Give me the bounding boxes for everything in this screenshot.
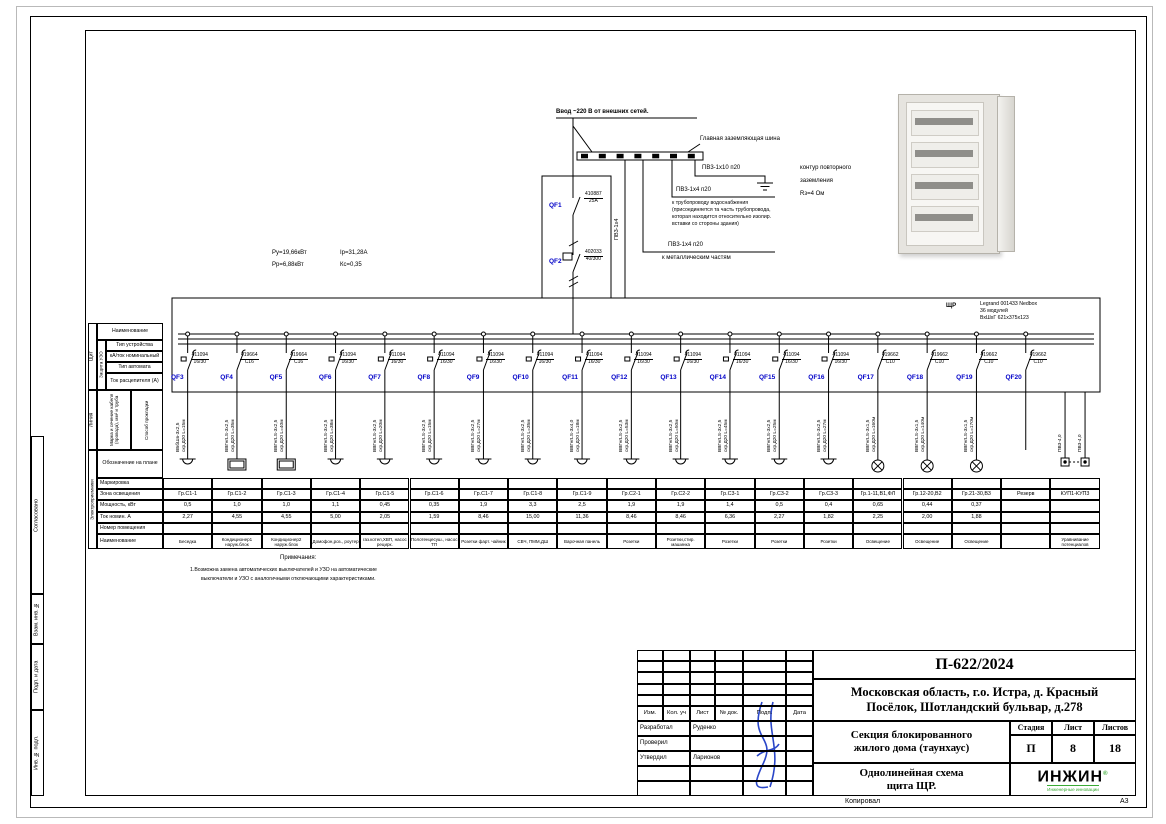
cell-empty-15 xyxy=(903,478,952,489)
cell-empty-12 xyxy=(755,523,804,534)
socket-symbol xyxy=(328,459,344,464)
revision-grid-cell xyxy=(786,672,813,683)
cable-label: ВВГнгLS-3х1,5скр.Д20 L=140м xyxy=(915,417,926,452)
signature-row-cell xyxy=(637,766,690,781)
revision-grid-cell xyxy=(637,672,663,683)
cell-group-4: Гр.С1-5 xyxy=(360,489,409,500)
cell-current-6: 8,46 xyxy=(459,512,508,523)
gzsh-label: Главная заземляющая шина xyxy=(700,136,780,143)
revision-header-cell: Кол. уч xyxy=(663,706,690,721)
notes-line1: 1.Возможна замена автоматических выключа… xyxy=(190,567,377,573)
breaker-current: 16/30 xyxy=(489,359,502,365)
cable-label: ВБбШв-3х2,5скр.Д20 L=15м xyxy=(176,419,187,452)
cell-power-18 xyxy=(1050,500,1099,512)
cell-power-12: 0,5 xyxy=(755,500,804,512)
revision-header-cell: Дата xyxy=(786,706,813,721)
cable-mark: ВВГнгLS-3х1,5 xyxy=(915,417,921,452)
bus-tap xyxy=(383,332,387,336)
revision-grid-cell xyxy=(743,684,786,695)
signature-row-cell: Проверил xyxy=(637,736,690,751)
cell-power-8: 2,5 xyxy=(557,500,606,512)
rcd-flag xyxy=(674,357,679,361)
cell-group-6: Гр.С1-7 xyxy=(459,489,508,500)
rcd-flag xyxy=(773,357,778,361)
metal-line: к металлическим частям xyxy=(662,255,731,262)
breaker-current: 16/30 xyxy=(785,359,798,365)
socket-symbol xyxy=(180,459,196,464)
signature-row-cell xyxy=(743,736,786,751)
cell-group-16: Гр.21-30,В3 xyxy=(952,489,1001,500)
cell-empty-6 xyxy=(459,523,508,534)
company-logo: ИНЖИН® Инженерные инновации xyxy=(1010,763,1136,796)
row-name: Наименование xyxy=(97,323,163,340)
revision-header-cell: Лист xyxy=(690,706,715,721)
cable-mark: ВВГнгLS-3х2,5 xyxy=(324,419,330,452)
breaker-rating: 419662C10 xyxy=(1029,353,1048,365)
cell-current-13: 1,82 xyxy=(804,512,853,523)
signature-row-cell xyxy=(637,781,690,796)
cable-mark: ВВГнгLS-3х2,5 xyxy=(225,419,231,452)
table-row-label: Маркировка xyxy=(97,478,163,489)
breaker-current: 16/30 xyxy=(391,359,404,365)
revision-grid-cell xyxy=(715,672,743,683)
revision-grid-cell xyxy=(663,650,690,661)
cable-label: ВВГнгLS-3х2,5скр.Д20 L=27м xyxy=(817,419,828,452)
power-pu: Ру=19,66кВт xyxy=(272,250,307,257)
breaker-current: 16/30 xyxy=(194,359,207,365)
bus-tap xyxy=(679,332,683,336)
qf-label-QF5: QF5 xyxy=(250,374,282,381)
cable-laying: скр.Д20 L=27м xyxy=(477,419,483,452)
cell-name-18: Уравнивание потенциалов xyxy=(1050,534,1099,549)
revision-grid-cell xyxy=(786,684,813,695)
cell-power-1: 1,0 xyxy=(212,500,261,512)
cell-group-11: Гр.С3-1 xyxy=(705,489,754,500)
cell-empty-4 xyxy=(360,478,409,489)
cell-empty-11 xyxy=(705,523,754,534)
revision-grid-cell xyxy=(637,650,663,661)
cell-empty-9 xyxy=(607,478,656,489)
cell-name-15: Освещение xyxy=(903,534,952,549)
cable-label: ВВГнгLS-3х2,5скр.Д20 L=35м xyxy=(521,419,532,452)
cell-name-8: Варочная панель xyxy=(557,534,606,549)
cell-name-11: Розетки xyxy=(705,534,754,549)
sheets-label: Листов xyxy=(1094,721,1136,735)
cell-empty-7 xyxy=(508,523,557,534)
cell-group-2: Гр.С1-3 xyxy=(262,489,311,500)
qf-label-QF3: QF3 xyxy=(152,374,184,381)
bus-tap xyxy=(334,332,338,336)
signature-row-cell xyxy=(786,721,813,736)
cell-group-14: Гр.1-11,В1,ФЛ xyxy=(853,489,902,500)
breaker-current: C16 xyxy=(245,359,254,365)
cable-label: ВВГнгLS-3х2,5скр.Д20 L=25м xyxy=(767,419,778,452)
cell-power-14: 0,65 xyxy=(853,500,902,512)
cell-group-13: Гр.С3-3 xyxy=(804,489,853,500)
socket-symbol xyxy=(821,459,837,464)
panel-spec1: Legrand 001433 Nedbox xyxy=(980,301,1037,307)
socket-symbol xyxy=(426,459,442,464)
cell-group-18: КУП1-КУП3 xyxy=(1050,489,1099,500)
breaker-current: 16/30 xyxy=(687,359,700,365)
breaker-rating: 41109416/30 xyxy=(486,353,504,365)
cell-empty-0 xyxy=(163,523,212,534)
breaker-current: 16/30 xyxy=(834,359,847,365)
cell-group-9: Гр.С2-1 xyxy=(607,489,656,500)
panel-spec2: 36 модулей xyxy=(980,308,1008,314)
sheet-value: 8 xyxy=(1052,735,1094,763)
bus-tap xyxy=(284,332,288,336)
pipe-label: ПВ3-1х4 п20 xyxy=(676,187,711,194)
kup-label: ПВ3-4,0 xyxy=(1078,434,1084,452)
cell-name-16: Освещение xyxy=(952,534,1001,549)
cell-empty-2 xyxy=(262,478,311,489)
format-label: А3 xyxy=(1120,798,1129,805)
cell-power-5: 0,35 xyxy=(410,500,459,512)
qf-label-QF9: QF9 xyxy=(447,374,479,381)
revision-grid-cell xyxy=(690,684,715,695)
cable-mark: ВБбШв-3х2,5 xyxy=(176,419,182,452)
kup-symbol-dot xyxy=(1084,461,1086,463)
cell-power-6: 1,9 xyxy=(459,500,508,512)
cell-name-10: Розетки,стир. машинка xyxy=(656,534,705,549)
kup-symbol-dot xyxy=(1064,461,1066,463)
cell-name-2: Кондиционер2 наруж.блок xyxy=(262,534,311,549)
cell-empty-15 xyxy=(903,523,952,534)
pipe-line3: которая находится относительно изолир. xyxy=(672,214,771,220)
cell-empty-0 xyxy=(163,478,212,489)
rcd-flag xyxy=(526,357,531,361)
qf-label-QF4: QF4 xyxy=(201,374,233,381)
signature-row-cell xyxy=(786,751,813,766)
cable-mark: ВВГнгLS-3х2,5 xyxy=(422,419,428,452)
pipe-line4: вставки со стороны здания) xyxy=(672,221,739,227)
revision-grid-cell xyxy=(663,695,690,706)
cable-laying: скр.Д20 L=25м xyxy=(773,419,779,452)
breaker-rating: 419662C10 xyxy=(930,353,949,365)
signature-row-cell xyxy=(786,736,813,751)
rcd-flag xyxy=(723,357,728,361)
stage-label: Стадия xyxy=(1010,721,1052,735)
bus-tap xyxy=(728,332,732,336)
cell-empty-8 xyxy=(557,523,606,534)
qf-label-QF15: QF15 xyxy=(743,374,775,381)
breaker-rating: 41109416/30 xyxy=(339,353,357,365)
qf1-rating: 41088725А xyxy=(584,192,603,204)
revision-grid-cell xyxy=(637,684,663,695)
qf-label-QF11: QF11 xyxy=(546,374,578,381)
socket-symbol xyxy=(574,459,590,464)
bus-tap xyxy=(531,332,535,336)
breaker-rating: 41109416/30 xyxy=(733,353,751,365)
cell-empty-16 xyxy=(952,478,1001,489)
qf-label-QF7: QF7 xyxy=(349,374,381,381)
cell-power-9: 1,9 xyxy=(607,500,656,512)
signature-row-cell xyxy=(690,766,743,781)
cell-name-4: газ.котел,ХВП, насос рецирк. xyxy=(360,534,409,549)
copied-label: Копировал xyxy=(845,798,880,805)
signature-row-cell xyxy=(786,781,813,796)
cable-label: ВВГнгLS-3х2,5скр.Д20 L=35м xyxy=(225,419,236,452)
breaker-current: 16/30 xyxy=(440,359,453,365)
signature-row-cell: Руденко xyxy=(690,721,743,736)
bus-tap xyxy=(974,332,978,336)
cell-empty-5 xyxy=(410,478,459,489)
cell-power-11: 1,4 xyxy=(705,500,754,512)
signature-row-cell xyxy=(743,781,786,796)
cable-laying: скр.Д20 L=38м xyxy=(329,419,335,452)
socket-symbol xyxy=(475,459,491,464)
pipe-line1: к трубопроводу водоснабжения xyxy=(672,200,748,206)
cell-power-4: 0,45 xyxy=(360,500,409,512)
breaker-current: C10 xyxy=(984,359,993,365)
rcd-flag xyxy=(576,357,581,361)
rcd-flag xyxy=(329,357,334,361)
cable-laying: скр.Д20 L=18м xyxy=(576,419,582,452)
cell-current-4: 2,05 xyxy=(360,512,409,523)
cable-laying: скр.Д20 L=27м xyxy=(822,419,828,452)
bus-tap xyxy=(432,332,436,336)
revision-grid-cell xyxy=(786,695,813,706)
cell-empty-13 xyxy=(804,478,853,489)
breaker-current: 16/30 xyxy=(588,359,601,365)
notes-title: Примечания: xyxy=(280,555,316,562)
cell-empty-17 xyxy=(1001,523,1050,534)
kontur-line2: заземления xyxy=(800,178,833,185)
cell-empty-2 xyxy=(262,523,311,534)
cell-empty-6 xyxy=(459,478,508,489)
cable-label: ВВГнгLS-3х2,5скр.Д20 L=40м xyxy=(274,419,285,452)
socket-symbol xyxy=(623,459,639,464)
signature-row-cell: Утвердил xyxy=(637,751,690,766)
cable-laying: скр.Д20 L=50м xyxy=(674,419,680,452)
cell-empty-3 xyxy=(311,478,360,489)
cable-laying: скр.Д20 L=40м xyxy=(280,419,286,452)
qf2-rating: 40203340/300 xyxy=(584,250,603,262)
panel-spec3: ВхШхГ 621х375х123 xyxy=(980,315,1029,321)
object-name: Секция блокированногожилого дома (таунха… xyxy=(813,721,1010,763)
revision-grid-cell xyxy=(690,650,715,661)
revision-grid-cell xyxy=(663,672,690,683)
bus-tap xyxy=(777,332,781,336)
revision-header-cell: № док. xyxy=(715,706,743,721)
revision-grid-cell xyxy=(715,650,743,661)
bus-tap xyxy=(925,332,929,336)
group-protect: Защита УЗО xyxy=(97,340,106,390)
kontur-line3: Rз=4 Ом xyxy=(800,191,824,198)
breaker-rating: 41109416/30 xyxy=(782,353,800,365)
cell-power-13: 0,4 xyxy=(804,500,853,512)
cell-current-1: 4,55 xyxy=(212,512,261,523)
breaker-rating: 419662C10 xyxy=(881,353,900,365)
cell-empty-1 xyxy=(212,523,261,534)
qf-label-QF20: QF20 xyxy=(990,374,1022,381)
cell-current-17 xyxy=(1001,512,1050,523)
cell-empty-10 xyxy=(656,478,705,489)
cell-empty-14 xyxy=(853,523,902,534)
revision-grid-cell xyxy=(663,684,690,695)
cable-label: ВВГнгLS-3х2,5скр.Д20 L=15м xyxy=(422,419,433,452)
qf-label-QF14: QF14 xyxy=(694,374,726,381)
breaker-rating: 41109416/30 xyxy=(437,353,455,365)
cell-name-12: Розетки xyxy=(755,534,804,549)
group-consumers: Электроприемники xyxy=(88,450,97,549)
revision-grid-cell xyxy=(663,661,690,672)
breaker-current: 16/30 xyxy=(539,359,552,365)
bus-tap xyxy=(235,332,239,336)
panel-tag: ЩР xyxy=(946,303,956,310)
cell-current-12: 2,27 xyxy=(755,512,804,523)
cable-label: ВВГнгLS-3х1,5скр.Д20 L=170м xyxy=(964,417,975,452)
cell-empty-12 xyxy=(755,478,804,489)
cable-label: ВВГнгLS-3х4,0скр.Д20 L=18м xyxy=(570,419,581,452)
qf2-label: QF2 xyxy=(549,258,562,265)
cell-name-17 xyxy=(1001,534,1050,549)
sheets-value: 18 xyxy=(1094,735,1136,763)
rcd-flag xyxy=(428,357,433,361)
cable-label: ВВГнгLS-3х2,5скр.Д20 L=38м xyxy=(324,419,335,452)
notes-line2: выключатели и УЗО с аналогичными отключа… xyxy=(201,576,376,582)
bus-tap xyxy=(827,332,831,336)
cell-name-7: СВЧ, ПММ,ДШ xyxy=(508,534,557,549)
cell-group-5: Гр.С1-6 xyxy=(410,489,459,500)
cell-group-15: Гр.12-20,В2 xyxy=(903,489,952,500)
breaker-rating: 41109416/30 xyxy=(536,353,554,365)
signature-row-cell xyxy=(743,751,786,766)
cell-current-0: 2,27 xyxy=(163,512,212,523)
cell-group-8: Гр.С1-9 xyxy=(557,489,606,500)
cell-empty-9 xyxy=(607,523,656,534)
rcd-flag xyxy=(378,357,383,361)
cell-name-14: Освещение xyxy=(853,534,902,549)
breaker-rating: 419664C16 xyxy=(240,353,259,365)
revision-grid-cell xyxy=(743,672,786,683)
cell-group-3: Гр.С1-4 xyxy=(311,489,360,500)
cell-empty-4 xyxy=(360,523,409,534)
cell-current-14: 2,25 xyxy=(853,512,902,523)
breaker-current: C16 xyxy=(294,359,303,365)
cable-laying: скр.Д20 L=15м xyxy=(181,419,187,452)
signature-row-cell xyxy=(743,721,786,736)
drawing-sheet: Согласовано Взам. инв. № Подп. и дата Ин… xyxy=(0,0,1166,824)
cable-mark: ВВГнгLS-3х2,5 xyxy=(718,419,724,452)
kontur-line1: контур повторного xyxy=(800,165,851,172)
cell-power-0: 0,5 xyxy=(163,500,212,512)
row-breaker-type: Тип автомата xyxy=(106,362,163,373)
cell-current-7: 15,00 xyxy=(508,512,557,523)
socket-symbol xyxy=(722,459,738,464)
cell-group-12: Гр.С3-2 xyxy=(755,489,804,500)
sheet-label: Лист xyxy=(1052,721,1094,735)
cell-name-9: Розетки xyxy=(607,534,656,549)
cell-current-11: 6,36 xyxy=(705,512,754,523)
breaker-rating: 419662C10 xyxy=(979,353,998,365)
power-kc: Кс=0,35 xyxy=(340,262,362,269)
signature-row-cell xyxy=(690,781,743,796)
pv10-label: ПВ3-1х10 п20 xyxy=(702,165,740,172)
revision-grid-cell xyxy=(743,695,786,706)
row-laying: Способ прокладки xyxy=(131,390,163,450)
revision-grid-cell xyxy=(715,661,743,672)
socket-symbol xyxy=(673,459,689,464)
cable-label: ВВГнгLS-3х2,5скр.Д20 L=27м xyxy=(471,419,482,452)
breaker-current: 16/30 xyxy=(341,359,354,365)
cable-label: ВВГнгLS-3х2,5скр.Д20 L=53м xyxy=(619,419,630,452)
table-row-label: Зона освещения xyxy=(97,489,163,500)
cell-power-16: 0,37 xyxy=(952,500,1001,512)
cell-empty-8 xyxy=(557,478,606,489)
cable-laying: скр.Д20 L=20м xyxy=(378,419,384,452)
breaker-current: C10 xyxy=(886,359,895,365)
qf-label-QF13: QF13 xyxy=(645,374,677,381)
breaker-rating: 41109416/30 xyxy=(191,353,209,365)
bus-tap xyxy=(186,332,190,336)
row-device-type: Тип устройства xyxy=(106,340,163,351)
revision-grid-cell xyxy=(786,661,813,672)
cell-power-17 xyxy=(1001,500,1050,512)
rcd-flag xyxy=(822,357,827,361)
bus-tap xyxy=(1024,332,1028,336)
qf-label-QF6: QF6 xyxy=(300,374,332,381)
metal-label: ПВ3-1х4 п20 xyxy=(668,242,703,249)
rcd-flag xyxy=(181,357,186,361)
cable-label: ВВГнгLS-3х2,5скр.Д20 L=20м xyxy=(373,419,384,452)
cell-group-10: Гр.С2-2 xyxy=(656,489,705,500)
cell-name-6: Розетки фарт. чайник xyxy=(459,534,508,549)
cell-empty-7 xyxy=(508,478,557,489)
cell-group-7: Гр.С1-8 xyxy=(508,489,557,500)
cell-empty-5 xyxy=(410,523,459,534)
group-line: Линия xyxy=(88,390,97,450)
bus-tap xyxy=(876,332,880,336)
power-pp: Рр=6,88кВт xyxy=(272,262,304,269)
breaker-current: C10 xyxy=(935,359,944,365)
breaker-current: C10 xyxy=(1034,359,1043,365)
breaker-rating: 41109416/30 xyxy=(684,353,702,365)
logo-tagline: Инженерные инновации xyxy=(1047,785,1099,793)
cell-power-3: 1,1 xyxy=(311,500,360,512)
cell-empty-14 xyxy=(853,478,902,489)
pipe-line2: (присоединяется та часть трубопровода, xyxy=(672,207,771,213)
cable-mark: ВВГнгLS-3х4,0 xyxy=(570,419,576,452)
bus-tap xyxy=(481,332,485,336)
cell-group-17: Резерв xyxy=(1001,489,1050,500)
qf-label-QF18: QF18 xyxy=(891,374,923,381)
cell-name-3: Домофон,роз., роутер xyxy=(311,534,360,549)
table-row-label: Наименование xyxy=(97,534,163,549)
cell-power-15: 0,44 xyxy=(903,500,952,512)
signature-row-cell: Ларионов xyxy=(690,751,743,766)
revision-header-cell: Изм. xyxy=(637,706,663,721)
cell-current-3: 5,00 xyxy=(311,512,360,523)
power-ip: Iр=31,28А xyxy=(340,250,368,257)
cell-current-10: 8,46 xyxy=(656,512,705,523)
cell-current-18 xyxy=(1050,512,1099,523)
group-shield: Щит xyxy=(88,323,97,390)
cell-current-2: 4,55 xyxy=(262,512,311,523)
cell-empty-18 xyxy=(1050,478,1099,489)
revision-grid-cell xyxy=(715,695,743,706)
cable-laying: скр.Д20 L=53м xyxy=(625,419,631,452)
rcd-flag xyxy=(477,357,482,361)
breaker-rating: 41109416/30 xyxy=(832,353,850,365)
cable-laying: скр.Д20 L=170м xyxy=(970,417,976,452)
cell-group-0: Гр.С1-1 xyxy=(163,489,212,500)
cable-mark: ВВГнгLS-3х2,5 xyxy=(521,419,527,452)
cell-group-1: Гр.С1-2 xyxy=(212,489,261,500)
pe-vertical-label: ПВ3-1х4 xyxy=(615,219,621,240)
kup-label: ПВ3-4,0 xyxy=(1058,434,1064,452)
